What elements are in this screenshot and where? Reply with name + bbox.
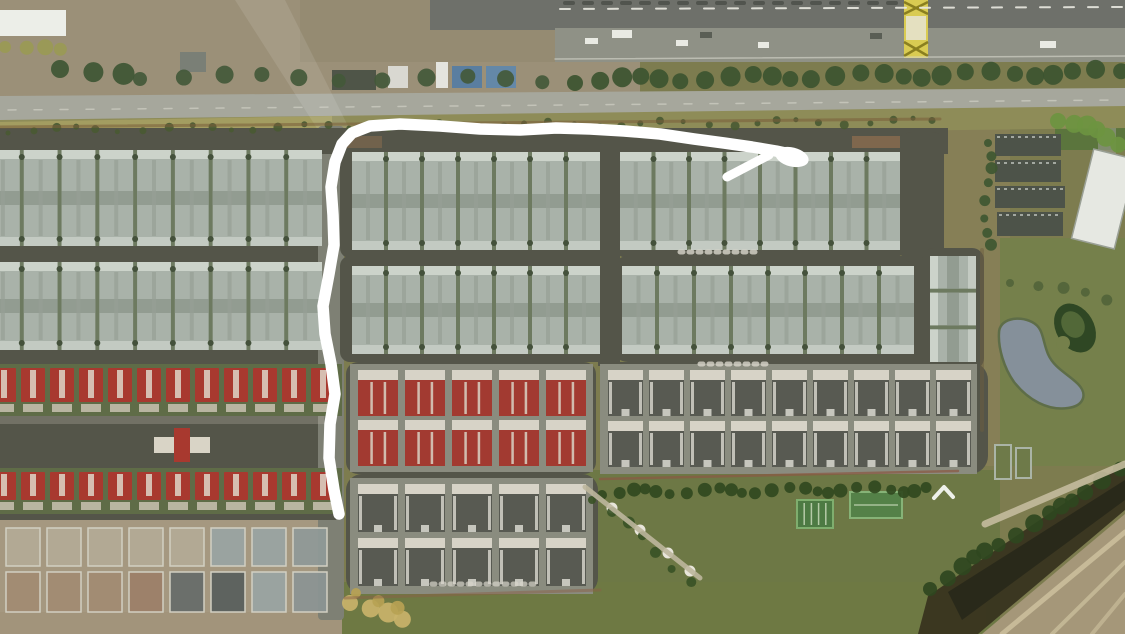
cluster-block-red [350, 364, 593, 472]
housing-block-endcap [930, 256, 976, 362]
red-roof-row [0, 364, 342, 416]
cluster-block-dark [600, 364, 977, 474]
housing-block [352, 266, 600, 354]
housing-block [0, 262, 322, 350]
housing-block [0, 150, 322, 246]
green-court [797, 500, 833, 528]
housing-block [622, 266, 914, 354]
housing-block [620, 152, 900, 250]
map-screenshot [0, 0, 1125, 634]
cluster-block-dark [350, 478, 593, 594]
aerial-view [0, 0, 1125, 634]
housing-block [352, 152, 600, 250]
red-roof-row [0, 468, 342, 514]
fenced-court [995, 445, 1011, 479]
fenced-court [1016, 448, 1031, 478]
